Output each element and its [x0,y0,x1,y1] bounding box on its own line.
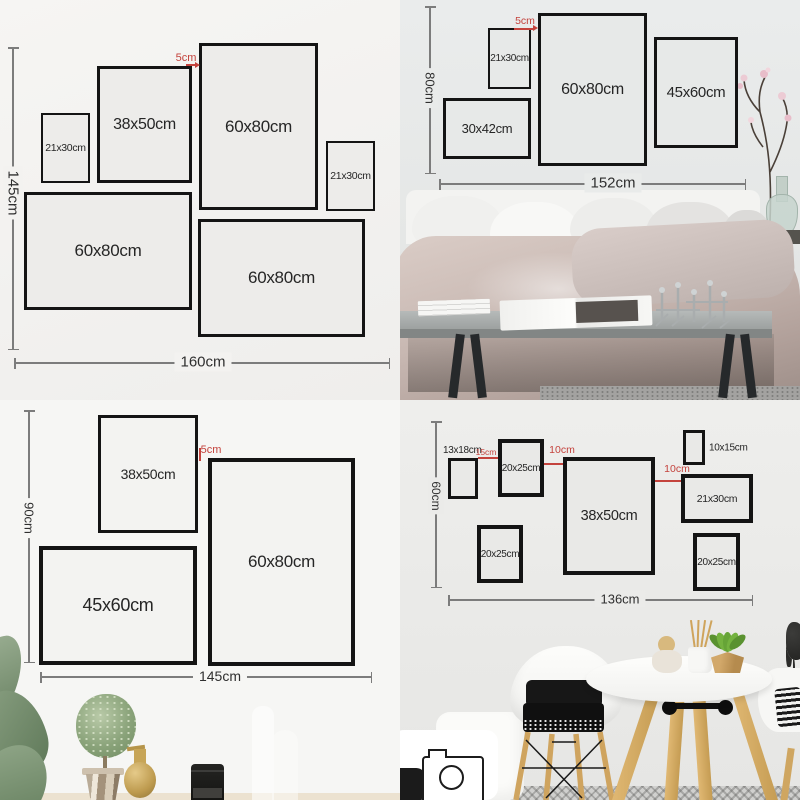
gap-line [544,463,563,465]
frame-size-label: 10x15cm [709,442,747,453]
frame-size-label: 45x60cm [667,84,726,101]
gap-label: 10cm [549,444,575,456]
frame-size-label: 30x42cm [462,121,513,136]
frame-size-label: 60x80cm [75,241,142,261]
picture-frame: 45x60cm [654,37,738,148]
picture-frame: 30x42cm [443,98,531,159]
picture-frame: 13x18cm [448,458,478,499]
gap-label: 5cm [201,444,222,456]
gap-label: 5cm [515,15,535,27]
picture-frame: 21x30cm [681,474,753,523]
frame-size-label: 38x50cm [581,508,638,524]
width-dimension-label: 136cm [594,591,645,608]
height-dimension-label: 80cm [422,68,439,108]
width-dimension-label: 160cm [174,353,231,372]
picture-frame: 20x25cm [477,525,523,583]
quadrant-bottom-left-diagram: 38x50cm60x80cm45x60cm 90cm 145cm 5cm [0,400,400,800]
frame-size-label: 21x30cm [45,142,86,154]
frame-size-label: 45x60cm [83,595,154,616]
gap-label: 5cm [176,52,197,64]
frames-layer: 21x30cm60x80cm45x60cm30x42cm [400,0,800,400]
height-dimension-label: 60cm [428,477,444,514]
frame-size-label: 20x25cm [481,549,519,560]
picture-frame: 60x80cm [208,458,355,666]
frame-size-label: 21x30cm [330,170,371,182]
width-dimension-label: 152cm [584,174,641,193]
quadrant-bottom-right-nook: 13x18cm20x25cm38x50cm10x15cm21x30cm20x25… [400,400,800,800]
picture-frame: 21x30cm [488,28,531,89]
frame-size-label: 21x30cm [490,53,528,64]
frame-size-label: 21x30cm [697,493,738,505]
gap-arrow-icon [195,62,200,68]
frame-size-label: 20x25cm [502,463,540,474]
picture-frame: 38x50cm [97,66,192,183]
frame-size-label: 20x25cm [697,557,735,568]
picture-frame: 10x15cm [683,430,705,465]
picture-frame: 20x25cm [693,533,740,591]
gap-line [514,28,534,30]
picture-frame: 60x80cm [538,13,647,166]
width-dimension-label: 145cm [193,667,247,685]
gap-label: 15cm [476,447,497,457]
gap-line [655,480,681,482]
picture-frame: 38x50cm [98,415,198,533]
picture-frame: 21x30cm [41,113,90,183]
height-dimension-label: 90cm [21,498,38,538]
picture-frame: 60x80cm [198,219,365,337]
height-dimension-label: 145cm [4,166,23,219]
picture-frame: 20x25cm [498,439,544,497]
quadrant-top-left-diagram: 21x30cm38x50cm60x80cm21x30cm60x80cm60x80… [0,0,400,400]
frame-size-guide-image: 21x30cm38x50cm60x80cm21x30cm60x80cm60x80… [0,0,800,800]
picture-frame: 60x80cm [24,192,192,310]
picture-frame: 38x50cm [563,457,655,575]
frame-size-label: 60x80cm [248,552,315,572]
frame-size-label: 60x80cm [248,268,315,288]
picture-frame: 21x30cm [326,141,375,211]
gap-line [478,457,498,459]
frame-size-label: 38x50cm [113,116,176,134]
gap-arrow-icon [533,25,538,31]
picture-frame: 45x60cm [39,546,197,665]
frame-size-label: 60x80cm [225,117,292,137]
gap-line [199,448,201,461]
gap-label: 10cm [664,463,690,475]
frame-size-label: 38x50cm [121,466,176,482]
picture-frame: 60x80cm [199,43,318,210]
quadrant-top-right-bedroom: 21x30cm60x80cm45x60cm30x42cm 80cm 152cm … [400,0,800,400]
frames-layer: 21x30cm38x50cm60x80cm21x30cm60x80cm60x80… [0,0,400,400]
frame-size-label: 60x80cm [561,81,624,99]
